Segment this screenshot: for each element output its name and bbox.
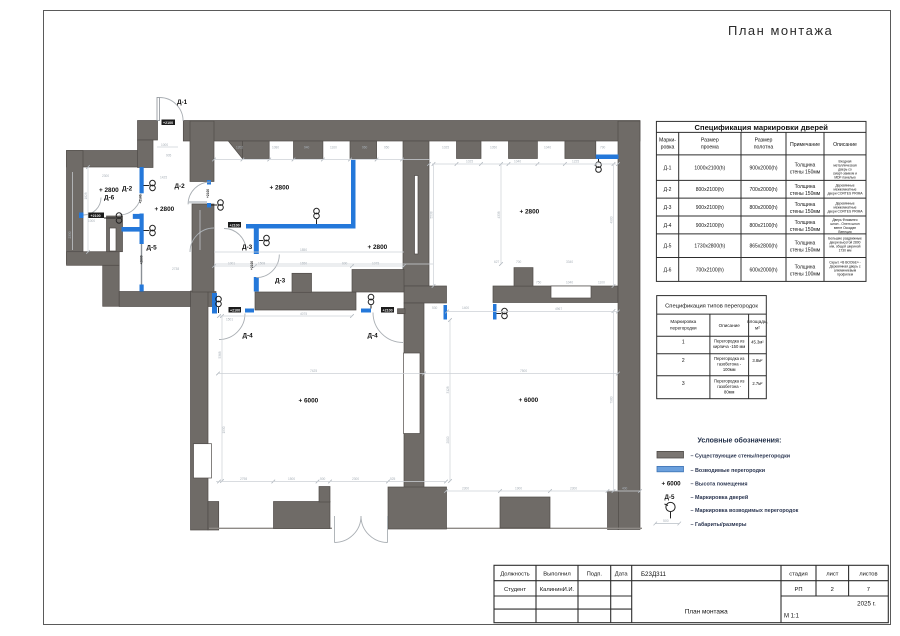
svg-text:+ 6000: + 6000	[519, 397, 539, 404]
svg-text:М 1:1: М 1:1	[784, 614, 800, 620]
svg-text:газобетона -: газобетона -	[717, 362, 741, 367]
svg-text:530: 530	[432, 306, 438, 310]
svg-text:500: 500	[320, 477, 326, 481]
svg-text:1501: 1501	[226, 318, 233, 322]
svg-text:7980: 7980	[609, 396, 613, 403]
svg-text:+ 2800: + 2800	[270, 185, 290, 192]
svg-text:3128: 3128	[446, 386, 450, 393]
svg-text:Д-5: Д-5	[147, 245, 158, 252]
svg-text:MDF панелью: MDF панелью	[834, 176, 856, 180]
svg-text:стадия: стадия	[789, 572, 807, 578]
svg-text:1400: 1400	[462, 306, 469, 310]
svg-text:Условные обозначения:: Условные обозначения:	[698, 437, 782, 445]
svg-text:Толщина: Толщина	[795, 202, 816, 208]
svg-text:2.7м²: 2.7м²	[752, 381, 763, 386]
svg-text:Подп.: Подп.	[587, 572, 603, 578]
svg-text:1650: 1650	[300, 262, 307, 266]
svg-text:– Габариты/размеры: – Габариты/размеры	[691, 521, 747, 528]
svg-text:865х2800(h): 865х2800(h)	[749, 244, 777, 250]
svg-text:+2100: +2100	[163, 121, 173, 125]
svg-text:800х2000(h): 800х2000(h)	[749, 205, 777, 211]
svg-text:Перегородка из: Перегородка из	[714, 379, 745, 384]
svg-text:525: 525	[390, 477, 396, 481]
svg-text:2300: 2300	[102, 174, 109, 178]
svg-text:Спецификация маркировки дверей: Спецификация маркировки дверей	[695, 123, 829, 132]
svg-text:– Существующие стены/перегород: – Существующие стены/перегородки	[691, 454, 791, 460]
svg-text:газобетона -: газобетона -	[717, 384, 741, 389]
svg-text:Толщина: Толщина	[795, 265, 816, 271]
svg-text:Д-3: Д-3	[275, 278, 286, 285]
svg-text:1508: 1508	[258, 262, 265, 266]
svg-text:перегородки: перегородки	[670, 326, 697, 331]
svg-text:80мм: 80мм	[724, 390, 735, 395]
svg-text:1040: 1040	[566, 280, 573, 284]
svg-text:профилем: профилем	[837, 273, 854, 277]
svg-text:4967: 4967	[555, 307, 562, 311]
svg-text:1730 мм: 1730 мм	[839, 249, 853, 253]
svg-text:двери CORTES PRIMA: двери CORTES PRIMA	[827, 192, 863, 196]
svg-text:1040: 1040	[544, 146, 551, 150]
svg-text:1075: 1075	[372, 262, 379, 266]
svg-text:1425: 1425	[160, 176, 167, 180]
svg-text:1000: 1000	[88, 219, 95, 223]
svg-text:5368: 5368	[218, 351, 222, 358]
svg-text:45.3м²: 45.3м²	[751, 340, 764, 345]
svg-text:2300: 2300	[352, 477, 359, 481]
svg-text:Размер: Размер	[755, 138, 773, 144]
svg-text:+ 2800: + 2800	[99, 187, 119, 194]
svg-text:1025: 1025	[442, 146, 449, 150]
svg-text:Описание: Описание	[833, 142, 857, 148]
svg-text:– Высота помещения: – Высота помещения	[691, 482, 748, 488]
svg-text:100мм: 100мм	[723, 367, 736, 372]
svg-text:4338: 4338	[497, 211, 501, 218]
svg-text:площадь,: площадь,	[747, 319, 767, 324]
svg-text:960: 960	[362, 146, 368, 150]
svg-text:полотна: полотна	[754, 145, 774, 151]
svg-text:КалининИ.И.: КалининИ.И.	[540, 587, 575, 593]
svg-text:1100: 1100	[598, 280, 605, 284]
svg-text:Д-1: Д-1	[177, 99, 188, 106]
svg-text:1000: 1000	[161, 143, 168, 147]
svg-text:7: 7	[867, 587, 870, 593]
svg-text:2738: 2738	[172, 267, 179, 271]
svg-text:+ 2800: + 2800	[368, 244, 388, 251]
svg-text:стены 100мм: стены 100мм	[790, 272, 821, 278]
svg-text:700х2100(h): 700х2100(h)	[696, 268, 724, 274]
svg-text:1040: 1040	[514, 160, 521, 164]
svg-text:2025 г.: 2025 г.	[857, 601, 876, 608]
svg-text:2: 2	[682, 358, 685, 364]
svg-text:700: 700	[516, 260, 522, 264]
svg-text:– Возводимые перегородки: – Возводимые перегородки	[691, 468, 766, 474]
svg-text:кирпича -150 мм: кирпича -150 мм	[713, 344, 745, 349]
svg-text:1930: 1930	[222, 426, 226, 433]
svg-text:Перегородка из: Перегородка из	[714, 356, 745, 361]
svg-text:м²: м²	[755, 326, 760, 331]
svg-text:4075: 4075	[300, 312, 307, 316]
svg-text:+ 6000: + 6000	[299, 398, 319, 405]
svg-text:1225: 1225	[572, 160, 579, 164]
svg-text:Толщина: Толщина	[795, 241, 816, 247]
svg-text:Марки-: Марки-	[659, 138, 676, 144]
svg-text:+2800: +2800	[140, 255, 144, 264]
svg-text:двери CORTES PRIMA: двери CORTES PRIMA	[827, 209, 863, 213]
svg-text:Д-5: Д-5	[664, 244, 672, 250]
svg-text:ровка: ровка	[661, 145, 675, 151]
svg-text:800х2100(h): 800х2100(h)	[696, 187, 724, 193]
svg-text:2798: 2798	[240, 477, 247, 481]
svg-text:+2100: +2100	[230, 308, 240, 312]
svg-text:1050: 1050	[490, 146, 497, 150]
svg-text:1160: 1160	[330, 146, 337, 150]
svg-text:Толщина: Толщина	[795, 220, 816, 226]
svg-text:7500: 7500	[520, 369, 527, 373]
svg-text:3.8м²: 3.8м²	[752, 358, 763, 363]
svg-text:Толщина: Толщина	[795, 184, 816, 190]
svg-text:РП: РП	[794, 587, 802, 593]
svg-text:+2100: +2100	[139, 194, 143, 203]
svg-text:905: 905	[166, 154, 172, 158]
svg-text:Дата: Дата	[615, 572, 629, 578]
svg-text:Примечание: Примечание	[790, 142, 820, 148]
svg-text:1900: 1900	[515, 487, 522, 491]
svg-text:790: 790	[600, 146, 606, 150]
svg-text:+2100: +2100	[383, 308, 393, 312]
svg-text:5538: 5538	[430, 211, 434, 218]
svg-text:4900: 4900	[609, 216, 613, 223]
svg-text:2000: 2000	[446, 436, 450, 443]
svg-text:стены 150мм: стены 150мм	[790, 227, 821, 233]
svg-text:+ 6000: + 6000	[662, 481, 682, 488]
svg-text:стены 150мм: стены 150мм	[790, 248, 821, 254]
svg-text:Должность: Должность	[500, 572, 529, 578]
svg-text:2300: 2300	[462, 487, 469, 491]
svg-text:+ 2800: + 2800	[520, 209, 540, 216]
svg-text:600: 600	[342, 262, 348, 266]
svg-text:800х2100(h): 800х2100(h)	[749, 223, 777, 229]
svg-text:+2100: +2100	[91, 214, 101, 218]
svg-text:Б23Д311: Б23Д311	[641, 571, 667, 578]
svg-text:Д-6: Д-6	[104, 195, 115, 202]
svg-text:Описание: Описание	[719, 323, 741, 328]
svg-text:2330: 2330	[68, 231, 72, 238]
svg-text:Маркировка: Маркировка	[670, 319, 696, 324]
svg-text:Студент: Студент	[504, 587, 526, 593]
svg-text:3340: 3340	[566, 260, 573, 264]
svg-text:700х2000(h): 700х2000(h)	[749, 187, 777, 193]
svg-text:– Маркировка дверей: – Маркировка дверей	[691, 494, 749, 501]
svg-text:750: 750	[536, 280, 542, 284]
svg-text:стены 150мм: стены 150мм	[790, 191, 821, 197]
svg-text:950: 950	[384, 146, 390, 150]
svg-text:1730х2800(h): 1730х2800(h)	[694, 244, 725, 250]
svg-text:стены 150мм: стены 150мм	[790, 170, 821, 176]
svg-text:лист: лист	[826, 572, 839, 578]
svg-text:2300: 2300	[570, 487, 577, 491]
svg-text:Д-3: Д-3	[242, 244, 253, 251]
svg-text:1000х2100(h): 1000х2100(h)	[694, 166, 725, 172]
svg-text:стены 150мм: стены 150мм	[790, 209, 821, 215]
svg-text:Перегородка из: Перегородка из	[714, 339, 745, 344]
svg-text:Д-5: Д-5	[665, 494, 675, 501]
svg-text:7425: 7425	[310, 369, 317, 373]
svg-text:400: 400	[622, 487, 628, 491]
svg-text:+2100: +2100	[250, 261, 254, 270]
svg-text:Д-3: Д-3	[664, 205, 672, 211]
svg-text:Размер: Размер	[701, 138, 719, 144]
svg-text:Толщина: Толщина	[795, 163, 816, 169]
svg-text:проема: проема	[701, 145, 719, 151]
svg-text:1202: 1202	[236, 146, 243, 150]
svg-text:Д-4: Д-4	[243, 333, 254, 340]
svg-text:+2100: +2100	[230, 223, 240, 227]
svg-text:2: 2	[831, 587, 834, 593]
svg-text:1850: 1850	[300, 248, 307, 252]
svg-text:900х2100(h): 900х2100(h)	[696, 223, 724, 229]
svg-text:Д-2: Д-2	[122, 186, 133, 193]
svg-text:600х2000(h): 600х2000(h)	[749, 268, 777, 274]
svg-text:+ 2800: + 2800	[155, 206, 175, 213]
svg-text:Д-4: Д-4	[368, 333, 379, 340]
svg-text:940: 940	[304, 146, 310, 150]
svg-text:Венеция: Венеция	[838, 230, 851, 234]
svg-text:листов: листов	[859, 572, 877, 578]
svg-text:+2100: +2100	[206, 189, 210, 198]
svg-text:Спецификация типов перегородок: Спецификация типов перегородок	[665, 304, 758, 310]
svg-text:Д-1: Д-1	[664, 166, 672, 172]
svg-text:900х2000(h): 900х2000(h)	[749, 166, 777, 172]
svg-text:1500: 1500	[288, 477, 295, 481]
svg-text:1001: 1001	[228, 262, 235, 266]
svg-text:Д-4: Д-4	[664, 223, 672, 229]
svg-text:900х2100(h): 900х2100(h)	[696, 205, 724, 211]
svg-text:План монтажа: План монтажа	[685, 609, 728, 616]
svg-text:– Маркировка возводимых перего: – Маркировка возводимых перегородок	[691, 508, 799, 514]
svg-text:3: 3	[682, 381, 685, 387]
svg-text:627: 627	[494, 260, 500, 264]
svg-text:Д-6: Д-6	[664, 268, 672, 274]
svg-text:Выполнил: Выполнил	[543, 572, 570, 578]
svg-text:1828: 1828	[84, 192, 88, 199]
svg-text:1: 1	[682, 340, 685, 346]
svg-text:Д-2: Д-2	[175, 183, 186, 190]
svg-text:1025: 1025	[466, 160, 473, 164]
svg-text:Д-2: Д-2	[664, 187, 672, 193]
svg-text:500: 500	[663, 519, 669, 523]
svg-text:1080: 1080	[272, 146, 279, 150]
